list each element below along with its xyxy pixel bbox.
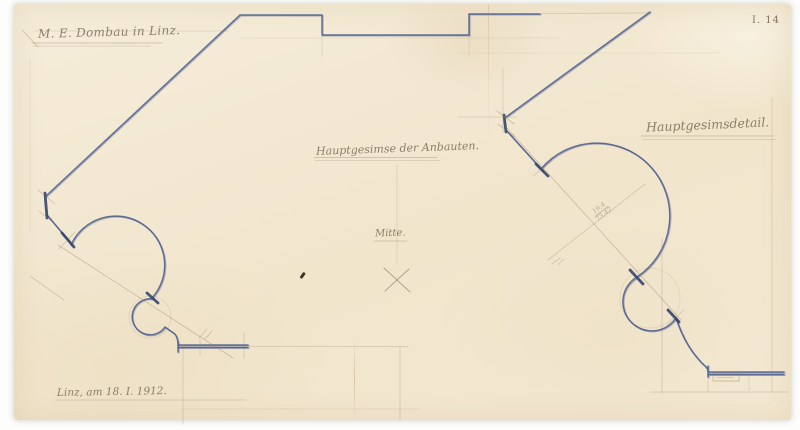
inscription-place-date: Linz, am 18. I. 1912. [57,385,167,399]
right-profile-top-diagonal [506,12,650,117]
left-profile-top-outline [46,14,540,196]
scanned-drawing-page: M. E. Dombau in Linz. Hauptgesimse der A… [0,0,800,430]
inscription-sheet-number: I. 14 [752,15,780,26]
inscription-center-mark: Mitte. [375,227,406,239]
ink-lines-echo [47,13,785,378]
left-profile-bead-and-step [132,299,178,345]
pencil-construction-lines [22,13,788,424]
drawing-linework [0,0,800,430]
